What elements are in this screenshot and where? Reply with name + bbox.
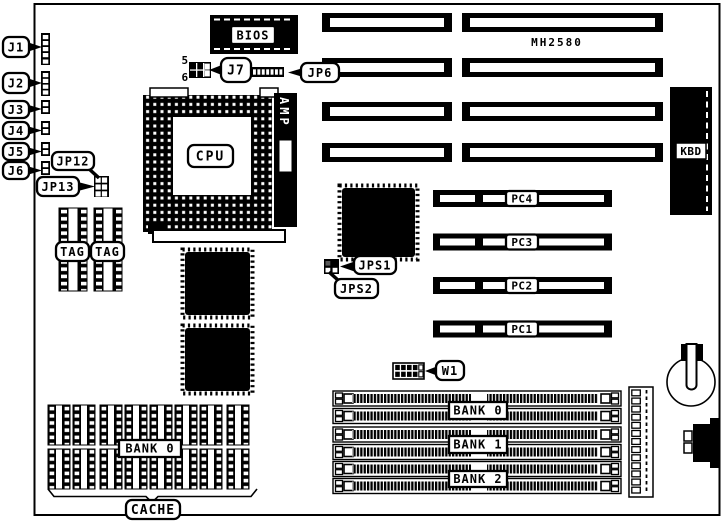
j7-label: J7 (227, 64, 245, 79)
j4-label: J4 (8, 124, 24, 138)
j7-pin6-number: 6 (181, 71, 188, 84)
isa-slot-3-left (322, 102, 452, 121)
j3-label: J3 (8, 103, 24, 117)
callout-tag-2: TAG (91, 242, 124, 261)
cpu-socket-handle (153, 230, 285, 242)
jp13-label: JP13 (42, 180, 75, 194)
motherboard-diagram: MH2580 KBD BIOS 5 6 J7 (0, 0, 723, 524)
isa-slot-1-left (322, 13, 452, 32)
isa-slot-1-right (462, 13, 663, 32)
jps2-label: JPS2 (340, 282, 373, 296)
qfp-chip-3 (340, 186, 418, 260)
kbd-connector: KBD (670, 87, 712, 215)
isa-slot-4-right (462, 143, 663, 162)
pc2-label: PC2 (511, 280, 532, 293)
cache-bank0-label: BANK 0 (125, 442, 174, 456)
board-model-text: MH2580 (531, 36, 583, 49)
tag1-label: TAG (60, 245, 85, 259)
isa-slot-3-right (462, 102, 663, 121)
kbd-label: KBD (680, 145, 701, 158)
simm-sockets: BANK 0 BANK 1 BANK 2 (333, 391, 621, 494)
connector-j3 (41, 100, 50, 114)
connector-j1 (41, 33, 50, 65)
cache-label: CACHE (131, 503, 175, 518)
pc1-label: PC1 (511, 323, 532, 336)
cpu-label: CPU (196, 150, 225, 165)
connector-j2 (41, 71, 50, 96)
j5-label: J5 (8, 145, 24, 159)
w1-label: W1 (442, 364, 458, 378)
simm-bank1-label: BANK 1 (453, 438, 502, 452)
j7-pin5-number: 5 (181, 54, 188, 67)
jp6-label: JP6 (308, 66, 333, 80)
pc3-label: PC3 (511, 236, 532, 249)
diagram-canvas: MH2580 KBD BIOS 5 6 J7 (0, 0, 723, 524)
simm-bank0-label: BANK 0 (453, 404, 502, 418)
header-strip (629, 387, 653, 497)
pc4-label: PC4 (511, 193, 532, 206)
isa-slot-2-left (322, 58, 452, 77)
jp12-label: JP12 (57, 155, 90, 169)
tag2-label: TAG (95, 245, 120, 259)
j2-label: J2 (8, 77, 24, 91)
connector-j4 (41, 121, 50, 135)
jps1-label: JPS1 (359, 259, 392, 273)
amp-label: AMP (277, 97, 291, 128)
simm-bank2-label: BANK 2 (453, 472, 502, 486)
callout-tag-1: TAG (56, 242, 89, 261)
qfp-chip-2 (183, 326, 253, 394)
jp12-jp13-block (94, 176, 109, 197)
isa-slot-2-right (462, 58, 663, 77)
callout-cache: CACHE (126, 500, 180, 519)
connector-j5 (41, 142, 50, 156)
bios-label: BIOS (237, 29, 270, 43)
jps-jumper-block (324, 259, 339, 274)
connector-j6 (41, 161, 50, 175)
isa-slot-4-left (322, 143, 452, 162)
j6-label: J6 (8, 164, 24, 178)
qfp-chip-1 (183, 250, 253, 318)
bios-chip: BIOS (210, 15, 298, 54)
j1-label: J1 (8, 41, 24, 55)
amp-regulator: AMP (274, 93, 297, 227)
cpu-socket: CPU (143, 88, 285, 242)
